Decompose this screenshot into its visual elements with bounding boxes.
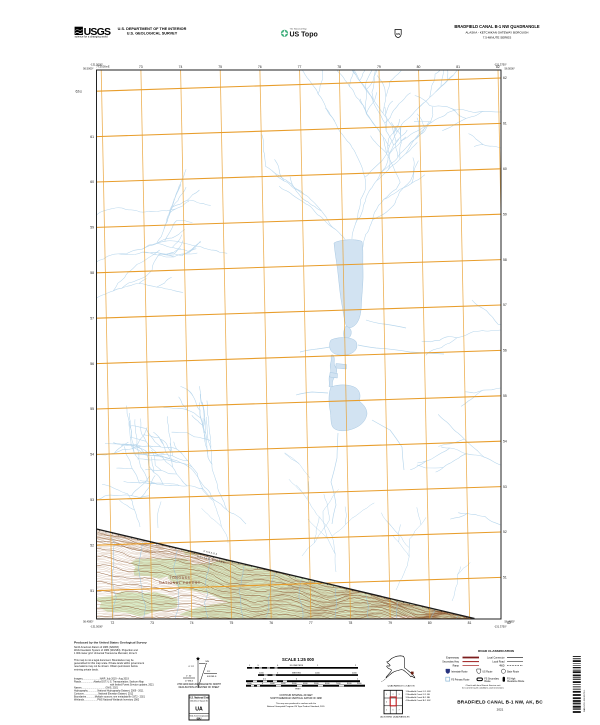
svg-text:3: 3 xyxy=(399,694,400,696)
svg-text:The National Map: The National Map xyxy=(290,27,308,30)
svg-text:CONTOUR INTERVAL 20 FEET: CONTOUR INTERVAL 20 FEET xyxy=(279,694,313,697)
svg-text:FS Primary Route: FS Primary Route xyxy=(451,678,470,681)
svg-text:5: 5 xyxy=(386,710,387,712)
svg-text:MN: MN xyxy=(206,661,210,663)
svg-text:52: 52 xyxy=(90,543,94,547)
svg-text:US: US xyxy=(396,32,400,36)
svg-text:KILOMETERS: KILOMETERS xyxy=(290,665,304,667)
svg-text:78: 78 xyxy=(337,65,341,69)
svg-text:60: 60 xyxy=(503,167,507,171)
svg-text:-131.5000°: -131.5000° xyxy=(90,625,103,629)
svg-text:56.4583°: 56.4583° xyxy=(83,619,93,623)
svg-text:National Geospatial Program US: National Geospatial Program US Topo Prod… xyxy=(267,705,326,708)
svg-text:US Topo: US Topo xyxy=(290,32,318,39)
svg-text:for current travel conditions: for current travel conditions and restri… xyxy=(462,687,505,690)
svg-text:NATIONAL FOREST: NATIONAL FOREST xyxy=(159,581,200,585)
svg-text:09U: 09U xyxy=(197,716,202,720)
svg-text:61: 61 xyxy=(90,135,94,139)
svg-text:1 Bradfield Canal C-1 SW: 1 Bradfield Canal C-1 SW xyxy=(406,690,432,693)
svg-text:80: 80 xyxy=(428,621,432,625)
svg-text:UA: UA xyxy=(195,707,203,713)
svg-text:100,000-m Square ID: 100,000-m Square ID xyxy=(190,699,209,702)
svg-text:58: 58 xyxy=(90,271,94,275)
svg-text:2021: 2021 xyxy=(497,708,504,712)
svg-text:73: 73 xyxy=(150,621,154,625)
svg-text:72: 72 xyxy=(111,621,115,625)
svg-text:ROAD CLASSIFICATION: ROAD CLASSIFICATION xyxy=(478,649,514,653)
svg-text:3 Bradfield Canal B-1 NE: 3 Bradfield Canal B-1 NE xyxy=(406,696,431,699)
svg-text:US Route: US Route xyxy=(482,671,493,674)
svg-text:SCALE 1:25 000: SCALE 1:25 000 xyxy=(282,657,315,662)
svg-text:74: 74 xyxy=(190,621,194,625)
svg-text:BRADFIELD CANAL B-1 NW, AK, B: BRADFIELD CANAL B-1 NW, AK, BC xyxy=(457,699,543,704)
svg-text:NORTH AMERICAN VERTICAL DATUM: NORTH AMERICAN VERTICAL DATUM OF 1988 xyxy=(270,697,322,700)
svg-text:FS Secondary: FS Secondary xyxy=(484,677,499,680)
svg-text:U.S. National Grid: U.S. National Grid xyxy=(189,697,209,700)
svg-text:Clearance Route: Clearance Route xyxy=(507,680,525,683)
svg-text:76: 76 xyxy=(269,621,273,625)
svg-text:75: 75 xyxy=(218,65,222,69)
svg-text:This map was produced to confo: This map was produced to conform with th… xyxy=(276,702,317,705)
svg-text:81: 81 xyxy=(456,65,460,69)
svg-text:State Route: State Route xyxy=(507,671,520,674)
svg-text:science for a changing world: science for a changing world xyxy=(75,35,109,39)
svg-text:Interstate Route: Interstate Route xyxy=(451,671,468,674)
svg-text:Ramp: Ramp xyxy=(453,664,460,667)
svg-text:75: 75 xyxy=(230,621,234,625)
svg-text:57: 57 xyxy=(503,303,507,307)
svg-text:6262: 6262 xyxy=(76,89,83,93)
svg-text:56: 56 xyxy=(90,362,94,366)
svg-text:2 Bradfield Canal C-1 SE: 2 Bradfield Canal C-1 SE xyxy=(406,693,431,696)
svg-text:6: 6 xyxy=(393,710,394,712)
svg-text:74: 74 xyxy=(179,65,183,69)
svg-text:1: 1 xyxy=(386,694,387,696)
svg-text:Secondary Hwy: Secondary Hwy xyxy=(442,660,460,663)
svg-text:23°: 23° xyxy=(207,671,210,673)
svg-text:1 000-meter grid: Universal Tr: 1 000-meter grid: Universal Transverse M… xyxy=(74,652,137,655)
svg-text:51: 51 xyxy=(503,576,507,580)
svg-text:Route: Route xyxy=(484,680,491,683)
svg-text:409 MILS: 409 MILS xyxy=(207,676,217,678)
svg-text:55: 55 xyxy=(90,407,94,411)
svg-text:56.5000°: 56.5000° xyxy=(83,67,93,71)
svg-text:59: 59 xyxy=(90,226,94,230)
svg-text:-131.5000°: -131.5000° xyxy=(90,62,103,66)
svg-text:1° 32': 1° 32' xyxy=(186,676,192,678)
svg-text:QUADRANGLE LOCATION: QUADRANGLE LOCATION xyxy=(388,684,415,687)
svg-text:51: 51 xyxy=(90,589,94,593)
svg-text:4: 4 xyxy=(386,702,387,704)
svg-text:BRADFIELD CANAL B-1 NW QUADRAN: BRADFIELD CANAL B-1 NW QUADRANGLE xyxy=(454,24,539,29)
svg-text:59: 59 xyxy=(503,212,507,216)
svg-text:77: 77 xyxy=(309,621,313,625)
svg-text:7.5-MINUTE SERIES: 7.5-MINUTE SERIES xyxy=(483,35,512,39)
svg-text:Check with local Forest Servic: Check with local Forest Service unit xyxy=(466,684,501,687)
svg-text:METERS: METERS xyxy=(292,672,301,674)
svg-text:ISBN 978-1-098-90795-1: ISBN 978-1-098-90795-1 xyxy=(584,689,586,712)
svg-text:U.S. DEPARTMENT OF THE INTERIO: U.S. DEPARTMENT OF THE INTERIOR xyxy=(118,27,187,31)
svg-text:TONGASS: TONGASS xyxy=(169,576,190,580)
svg-text:ALASKA - KETCHIKAN GATEWAY BOR: ALASKA - KETCHIKAN GATEWAY BOROUGH xyxy=(466,30,529,34)
svg-text:55: 55 xyxy=(503,394,507,398)
svg-text:ADJOINING QUADRANGLES: ADJOINING QUADRANGLES xyxy=(380,716,410,719)
svg-text:56.4583°: 56.4583° xyxy=(505,619,515,623)
svg-text:UTM GRID AND 2021 MAGNETIC NOR: UTM GRID AND 2021 MAGNETIC NORTH xyxy=(177,683,221,686)
svg-text:Wetlands....................FW: Wetlands....................FWS National… xyxy=(74,699,140,702)
svg-text:27 MILS: 27 MILS xyxy=(185,681,194,683)
svg-text:78: 78 xyxy=(349,621,353,625)
svg-text:77: 77 xyxy=(298,65,302,69)
svg-text:57: 57 xyxy=(90,316,94,320)
svg-text:4WD: 4WD xyxy=(499,664,505,667)
svg-text:0° 19': 0° 19' xyxy=(188,666,194,668)
svg-text:56: 56 xyxy=(503,349,507,353)
svg-text:81: 81 xyxy=(468,621,472,625)
svg-text:4 Bradfield Canal B-1 SW: 4 Bradfield Canal B-1 SW xyxy=(406,699,432,702)
svg-text:61: 61 xyxy=(503,122,507,126)
svg-text:54: 54 xyxy=(503,439,507,443)
svg-text:52: 52 xyxy=(503,530,507,534)
svg-text:62: 62 xyxy=(503,76,507,80)
svg-text:FEET: FEET xyxy=(295,689,301,691)
svg-text:56.5000°: 56.5000° xyxy=(505,67,515,71)
svg-text:DECLINATION AT CENTER OF SHEET: DECLINATION AT CENTER OF SHEET xyxy=(179,686,220,689)
svg-text:79: 79 xyxy=(377,65,381,69)
svg-text:60: 60 xyxy=(90,180,94,184)
svg-text:80: 80 xyxy=(417,65,421,69)
svg-text:7: 7 xyxy=(399,710,400,712)
svg-text:Local Road: Local Road xyxy=(492,660,505,663)
svg-text:54: 54 xyxy=(90,453,94,457)
svg-text:73: 73 xyxy=(139,65,143,69)
svg-text:entering private lands.: entering private lands. xyxy=(74,668,99,671)
svg-text:53: 53 xyxy=(90,498,94,502)
svg-text:FS High: FS High xyxy=(507,678,516,680)
svg-text:Produced by the United States: Produced by the United States Geological… xyxy=(74,641,147,645)
svg-text:Expressway: Expressway xyxy=(446,656,460,659)
svg-text:Local Connector: Local Connector xyxy=(487,656,505,659)
svg-text:-131.3750°: -131.3750° xyxy=(494,62,507,66)
svg-text:79: 79 xyxy=(388,621,392,625)
svg-text:U.S. GEOLOGICAL SURVEY: U.S. GEOLOGICAL SURVEY xyxy=(127,32,178,36)
svg-text:76: 76 xyxy=(258,65,262,69)
svg-text:-131.3750°: -131.3750° xyxy=(494,625,507,629)
svg-text:58: 58 xyxy=(503,258,507,262)
svg-text:2: 2 xyxy=(393,694,394,696)
svg-text:53: 53 xyxy=(503,485,507,489)
